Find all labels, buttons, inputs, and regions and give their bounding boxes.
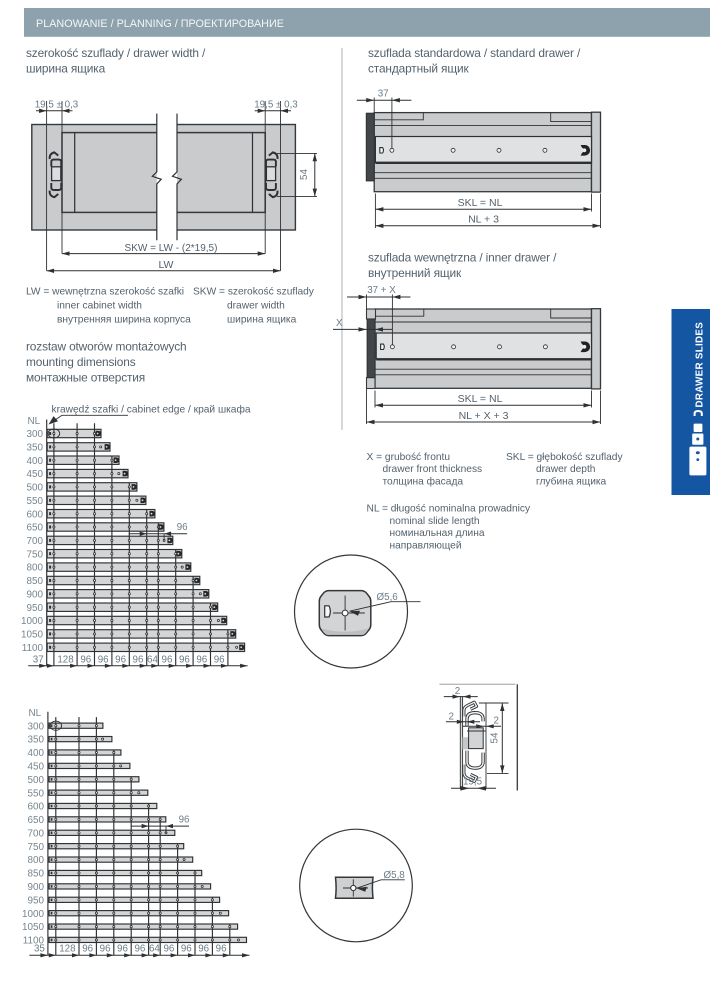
svg-text:ширина ящика: ширина ящика — [227, 315, 297, 326]
svg-text:szuflada wewnętrzna / inner dr: szuflada wewnętrzna / inner drawer / — [368, 251, 557, 265]
svg-text:37 + X: 37 + X — [367, 285, 396, 296]
svg-text:PLANOWANIE / PLANNING / ПРОЕКТ: PLANOWANIE / PLANNING / ПРОЕКТИРОВАНИЕ — [36, 18, 284, 30]
svg-text:направляющей: направляющей — [390, 541, 462, 552]
svg-text:Ø5,6: Ø5,6 — [377, 592, 399, 603]
svg-text:96: 96 — [216, 944, 227, 955]
svg-text:350: 350 — [27, 443, 44, 454]
svg-text:rozstaw otworów montażowych: rozstaw otworów montażowych — [26, 340, 187, 354]
svg-text:900: 900 — [28, 882, 45, 893]
svg-text:SKW = szerokość szuflady: SKW = szerokość szuflady — [193, 287, 315, 298]
svg-text:1000: 1000 — [21, 616, 43, 627]
svg-text:SKL = głębokość szuflady: SKL = głębokość szuflady — [506, 452, 623, 463]
svg-text:96: 96 — [115, 655, 126, 666]
svg-text:1050: 1050 — [21, 630, 43, 641]
svg-text:19,5: 19,5 — [463, 776, 483, 787]
svg-text:X = grubość frontu: X = grubość frontu — [367, 452, 451, 463]
svg-text:900: 900 — [27, 589, 44, 600]
svg-text:950: 950 — [27, 603, 44, 614]
svg-text:NL: NL — [29, 708, 42, 719]
svg-text:800: 800 — [27, 563, 44, 574]
svg-text:300: 300 — [28, 721, 45, 732]
svg-text:внутренняя ширина корпуса: внутренняя ширина корпуса — [57, 315, 191, 326]
svg-text:750: 750 — [27, 549, 44, 560]
svg-text:2: 2 — [494, 716, 499, 727]
svg-text:drawer width: drawer width — [227, 301, 285, 312]
svg-text:37: 37 — [33, 655, 44, 666]
svg-text:96: 96 — [198, 944, 209, 955]
svg-text:96: 96 — [133, 655, 144, 666]
svg-text:SKL = NL: SKL = NL — [458, 197, 503, 209]
svg-text:550: 550 — [27, 496, 44, 507]
svg-text:NL = długość nominalna prowadn: NL = długość nominalna prowadnicy — [367, 504, 531, 515]
svg-text:inner cabinet width: inner cabinet width — [57, 301, 142, 312]
svg-text:внутренний ящик: внутренний ящик — [368, 266, 462, 280]
svg-text:1050: 1050 — [22, 922, 44, 933]
svg-text:96: 96 — [100, 944, 111, 955]
svg-text:650: 650 — [27, 523, 44, 534]
svg-text:1100: 1100 — [22, 643, 44, 654]
svg-text:350: 350 — [28, 735, 45, 746]
svg-text:64: 64 — [149, 944, 160, 955]
svg-text:96: 96 — [162, 655, 173, 666]
svg-text:600: 600 — [28, 802, 45, 813]
svg-text:19,5 ± 0,3: 19,5 ± 0,3 — [35, 100, 79, 111]
svg-text:2: 2 — [449, 712, 454, 723]
svg-text:450: 450 — [28, 762, 45, 773]
svg-text:X: X — [336, 318, 343, 329]
svg-text:35: 35 — [34, 944, 45, 955]
svg-text:128: 128 — [59, 944, 76, 955]
svg-text:400: 400 — [28, 748, 45, 759]
svg-text:500: 500 — [27, 483, 44, 494]
svg-text:толщина фасада: толщина фасада — [383, 476, 464, 488]
svg-text:drawer front thickness: drawer front thickness — [383, 464, 483, 475]
svg-text:96: 96 — [196, 655, 207, 666]
svg-text:96: 96 — [179, 815, 190, 826]
svg-text:drawer depth: drawer depth — [536, 464, 595, 475]
svg-text:800: 800 — [28, 855, 45, 866]
svg-text:600: 600 — [27, 509, 44, 520]
svg-text:64: 64 — [147, 655, 158, 666]
svg-text:450: 450 — [27, 469, 44, 480]
svg-text:szuflada standardowa / standar: szuflada standardowa / standard drawer / — [368, 46, 581, 60]
svg-text:96: 96 — [179, 655, 190, 666]
svg-text:стандартный ящик: стандартный ящик — [368, 62, 469, 76]
svg-text:96: 96 — [214, 655, 225, 666]
svg-text:950: 950 — [28, 895, 45, 906]
svg-text:глубина ящика: глубина ящика — [536, 476, 607, 488]
svg-text:128: 128 — [57, 655, 74, 666]
svg-text:400: 400 — [27, 456, 44, 467]
svg-text:2: 2 — [455, 686, 460, 697]
svg-text:96: 96 — [177, 522, 188, 533]
svg-text:DRAWER SLIDES: DRAWER SLIDES — [695, 322, 706, 408]
svg-text:SKL = NL: SKL = NL — [458, 393, 503, 405]
svg-text:700: 700 — [28, 828, 45, 839]
svg-text:монтажные отверстия: монтажные отверстия — [26, 371, 145, 385]
svg-text:850: 850 — [28, 869, 45, 880]
svg-text:700: 700 — [27, 536, 44, 547]
svg-text:96: 96 — [98, 655, 109, 666]
svg-text:SKW = LW - (2*19,5): SKW = LW - (2*19,5) — [125, 243, 218, 254]
svg-text:LW: LW — [159, 259, 174, 271]
svg-text:550: 550 — [28, 788, 45, 799]
svg-text:850: 850 — [27, 576, 44, 587]
svg-text:mounting dimensions: mounting dimensions — [26, 355, 136, 369]
svg-text:NL: NL — [28, 416, 41, 427]
svg-text:szerokość szuflady / drawer wi: szerokość szuflady / drawer width / — [26, 46, 206, 60]
svg-text:1000: 1000 — [22, 909, 44, 920]
svg-text:500: 500 — [28, 775, 45, 786]
svg-text:96: 96 — [117, 944, 128, 955]
svg-text:750: 750 — [28, 842, 45, 853]
svg-text:NL + 3: NL + 3 — [468, 214, 499, 226]
svg-text:NL + X + 3: NL + X + 3 — [459, 410, 509, 422]
svg-text:LW = wewnętrzna szerokość szaf: LW = wewnętrzna szerokość szafki — [26, 287, 184, 298]
svg-text:650: 650 — [28, 815, 45, 826]
svg-text:номинальная длина: номинальная длина — [390, 528, 485, 539]
svg-text:96: 96 — [134, 944, 145, 955]
svg-text:96: 96 — [163, 944, 174, 955]
svg-text:krawędź szafki / cabinet edge: krawędź szafki / cabinet edge / край шка… — [52, 404, 251, 416]
svg-text:nominal slide length: nominal slide length — [390, 516, 480, 527]
svg-text:54: 54 — [299, 169, 310, 180]
svg-text:19,5 ± 0,3: 19,5 ± 0,3 — [254, 100, 298, 111]
svg-text:37: 37 — [378, 89, 389, 100]
svg-text:300: 300 — [27, 429, 44, 440]
svg-text:96: 96 — [80, 655, 91, 666]
svg-text:96: 96 — [181, 944, 192, 955]
svg-text:ширина ящика: ширина ящика — [26, 62, 106, 76]
svg-text:54: 54 — [490, 732, 501, 743]
svg-text:Ø5,8: Ø5,8 — [384, 870, 406, 881]
svg-text:96: 96 — [82, 944, 93, 955]
